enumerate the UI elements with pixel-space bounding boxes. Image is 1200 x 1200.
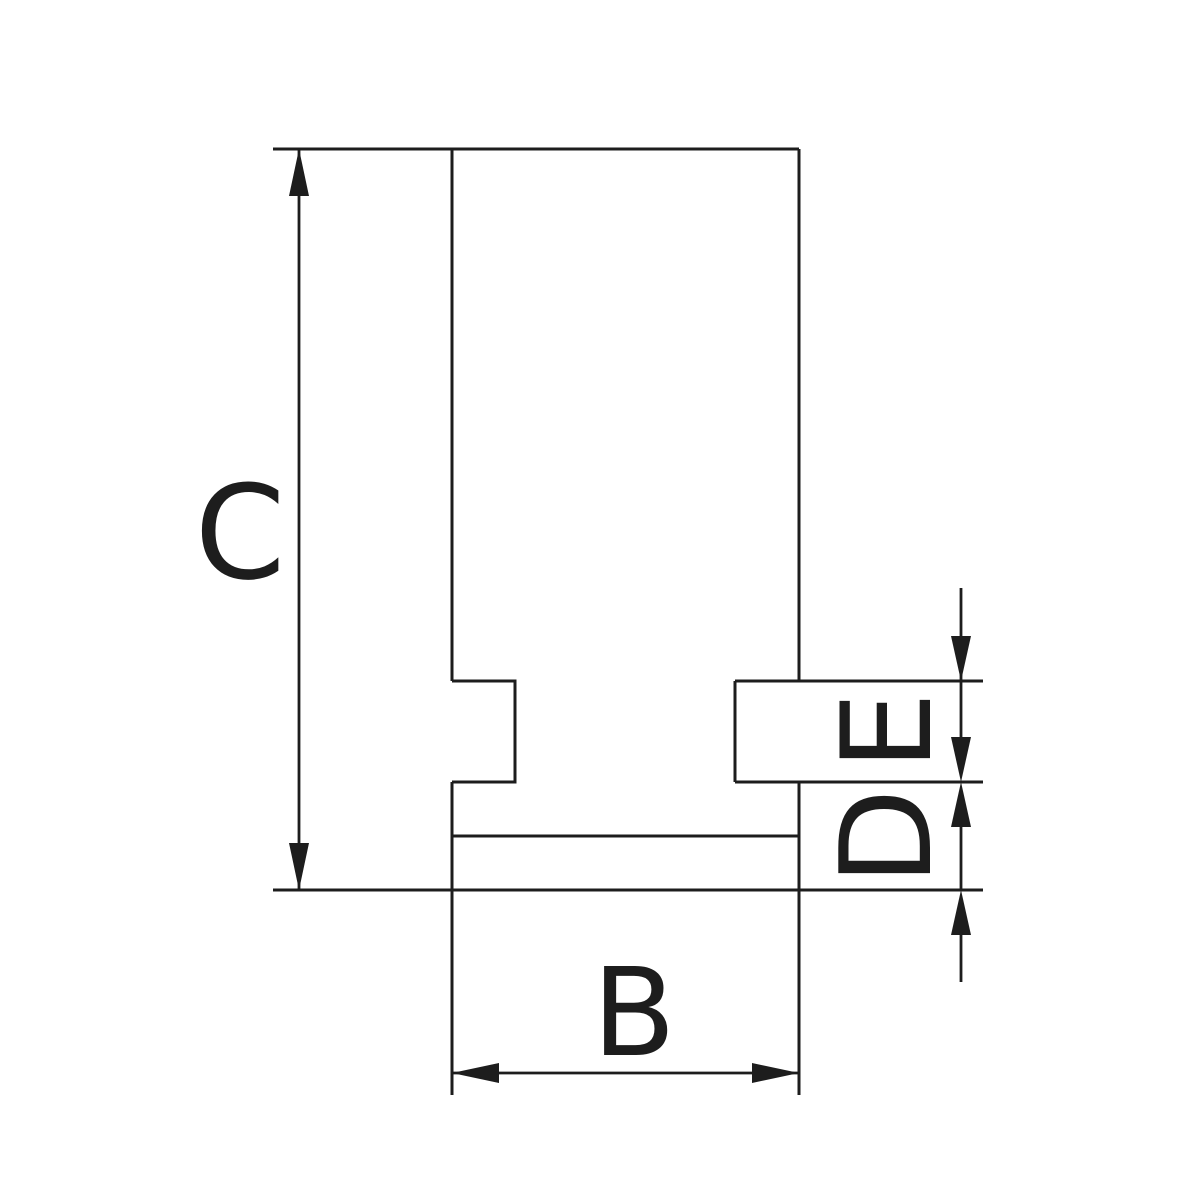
- label-C: C: [195, 457, 286, 609]
- dimension-B: B: [452, 942, 799, 1084]
- dimension-E-arrow-top: [951, 636, 971, 681]
- drawing-page: C B E D: [0, 0, 1200, 1200]
- dimension-D: D: [813, 782, 971, 982]
- dimension-C-arrow-down: [289, 843, 309, 890]
- label-E: E: [816, 692, 960, 770]
- dimension-C-arrow-up: [289, 149, 309, 196]
- drawing-canvas: C B E D: [0, 0, 1200, 1200]
- dimension-B-arrow-left: [452, 1063, 499, 1083]
- part-left-notch: [452, 681, 515, 782]
- dimension-D-arrow-bottom: [951, 890, 971, 935]
- dimension-E: E: [816, 588, 971, 782]
- label-D: D: [813, 788, 960, 885]
- dimension-C: C: [195, 149, 309, 890]
- dimension-B-arrow-right: [752, 1063, 799, 1083]
- label-B: B: [592, 942, 676, 1084]
